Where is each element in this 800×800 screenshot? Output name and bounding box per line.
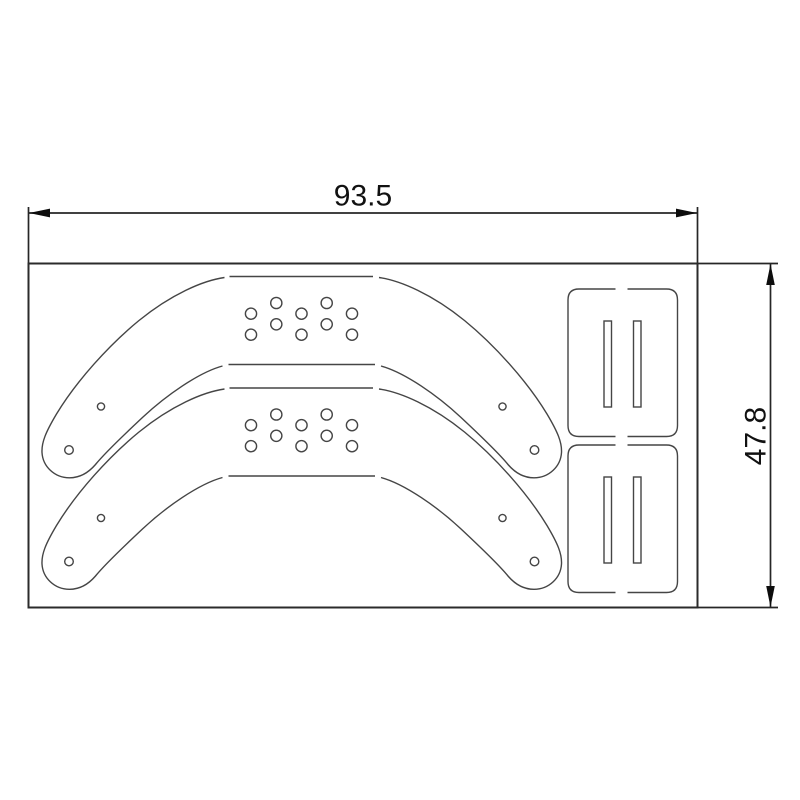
hole bbox=[271, 297, 282, 308]
hole bbox=[245, 308, 256, 319]
dimension-arrowheads bbox=[29, 209, 775, 607]
dimension-lines bbox=[29, 207, 779, 608]
hole bbox=[271, 319, 282, 330]
curved-bracket-part-2 bbox=[42, 388, 562, 589]
hole bbox=[97, 403, 104, 410]
arrowhead-left-icon bbox=[29, 209, 50, 218]
hole bbox=[530, 557, 539, 566]
curved-bracket-part-1 bbox=[42, 277, 562, 478]
hole bbox=[321, 297, 332, 308]
hole bbox=[65, 557, 74, 566]
slotted-plate-part-2 bbox=[568, 445, 678, 593]
hole bbox=[245, 441, 256, 452]
hole bbox=[271, 409, 282, 420]
hole bbox=[296, 420, 307, 431]
hole bbox=[499, 514, 506, 521]
hole bbox=[296, 308, 307, 319]
hole bbox=[346, 441, 357, 452]
hole bbox=[346, 308, 357, 319]
arrowhead-right-icon bbox=[676, 209, 697, 218]
hole bbox=[346, 329, 357, 340]
hole bbox=[245, 329, 256, 340]
technical-drawing-page: 93.5 47.8 bbox=[0, 0, 800, 800]
hole bbox=[296, 441, 307, 452]
cad-drawing: 93.5 47.8 bbox=[0, 0, 800, 800]
hole bbox=[321, 319, 332, 330]
hole bbox=[97, 514, 104, 521]
height-dimension-label: 47.8 bbox=[740, 407, 773, 465]
arrowhead-down-icon bbox=[766, 586, 775, 607]
hole bbox=[296, 329, 307, 340]
hole bbox=[346, 420, 357, 431]
sheet-outline bbox=[29, 264, 698, 608]
hole bbox=[321, 409, 332, 420]
hole bbox=[65, 446, 74, 455]
slotted-plate-part-1 bbox=[568, 289, 678, 437]
arrowhead-up-icon bbox=[766, 264, 775, 285]
hole bbox=[271, 430, 282, 441]
hole bbox=[321, 430, 332, 441]
hole bbox=[499, 403, 506, 410]
hole bbox=[245, 420, 256, 431]
parts-layer bbox=[42, 277, 678, 593]
width-dimension-label: 93.5 bbox=[334, 180, 392, 213]
hole bbox=[530, 446, 539, 455]
